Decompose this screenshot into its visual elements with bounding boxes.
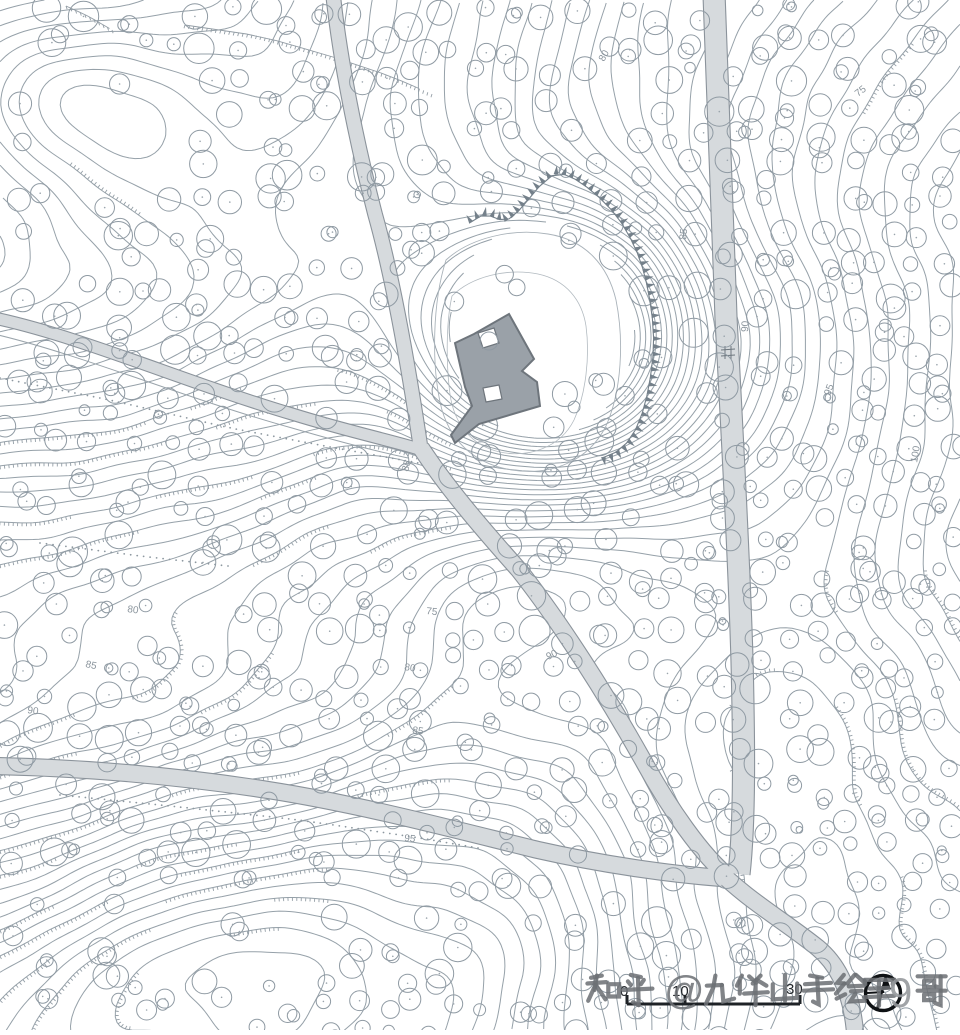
svg-text:90: 90 <box>740 320 751 332</box>
svg-text:@: @ <box>664 969 705 1013</box>
svg-text:85: 85 <box>412 725 425 738</box>
svg-text:75: 75 <box>426 606 439 618</box>
svg-text:30: 30 <box>786 981 803 998</box>
svg-text:90: 90 <box>27 705 40 718</box>
svg-text:80: 80 <box>127 604 140 617</box>
svg-text:80: 80 <box>404 662 417 675</box>
svg-text:95: 95 <box>404 833 417 845</box>
svg-text:85: 85 <box>678 228 690 241</box>
svg-text:9: 9 <box>889 969 912 1016</box>
